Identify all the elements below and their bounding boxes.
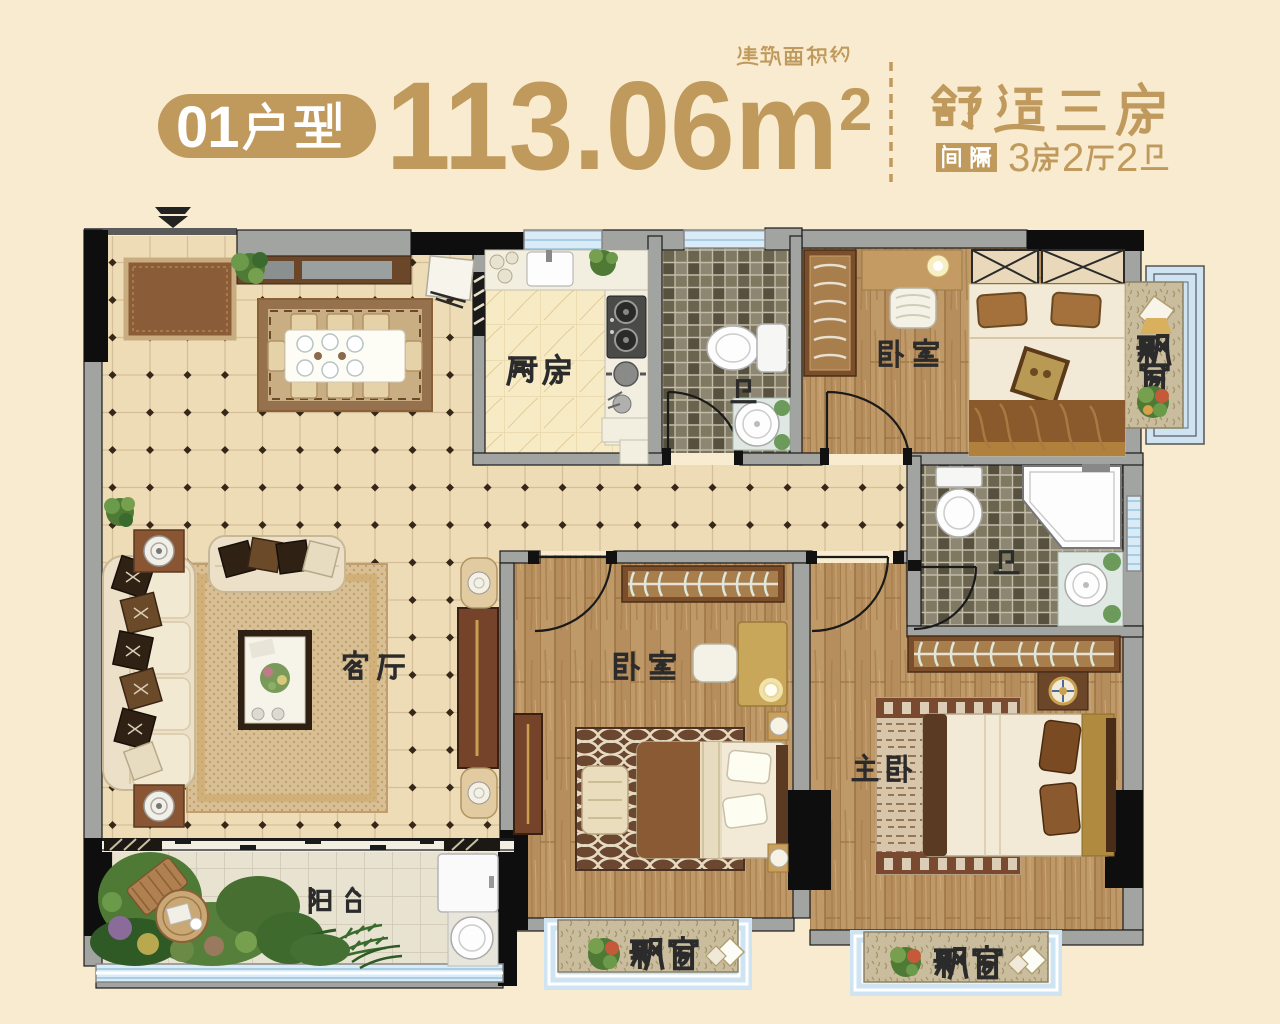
svg-text:2: 2 [839, 76, 872, 143]
svg-text:2: 2 [1062, 136, 1084, 180]
svg-text:113.06m: 113.06m [386, 57, 838, 196]
svg-text:2: 2 [1116, 136, 1138, 180]
svg-text:3: 3 [1008, 136, 1030, 180]
svg-text:01: 01 [176, 95, 239, 160]
